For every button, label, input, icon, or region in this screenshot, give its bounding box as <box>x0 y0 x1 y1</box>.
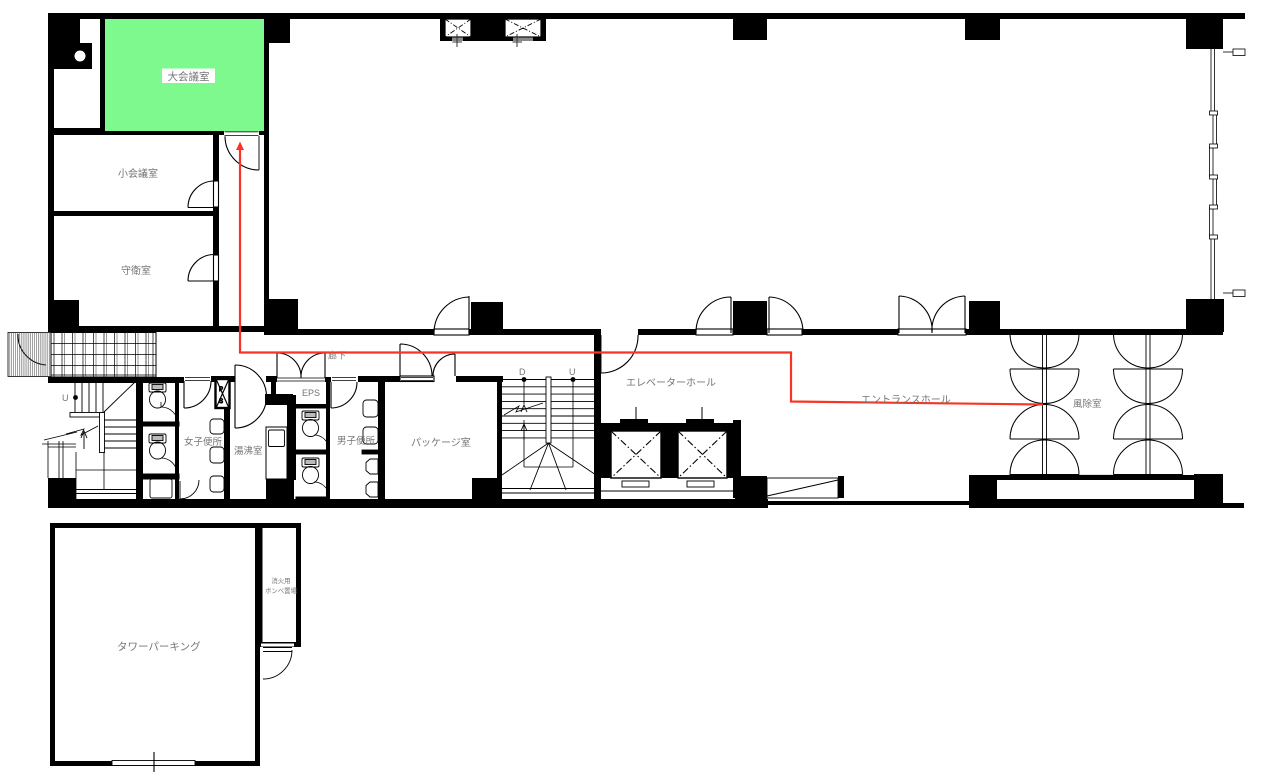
svg-text:EPS: EPS <box>302 388 320 398</box>
svg-text:風除室: 風除室 <box>1073 398 1102 410</box>
svg-text:小会議室: 小会議室 <box>118 167 158 180</box>
svg-text:エントランスホール: エントランスホール <box>861 394 951 406</box>
svg-text:U: U <box>569 367 576 377</box>
svg-text:廊下: 廊下 <box>328 350 346 361</box>
svg-text:男子便所: 男子便所 <box>337 435 376 447</box>
svg-text:消火用: 消火用 <box>271 576 290 585</box>
svg-text:S: S <box>219 399 223 405</box>
svg-text:パッケージ室: パッケージ室 <box>411 436 471 449</box>
svg-text:D: D <box>519 367 526 377</box>
svg-text:U: U <box>62 393 69 403</box>
svg-text:エレベーターホール: エレベーターホール <box>626 377 716 389</box>
svg-text:女子便所: 女子便所 <box>184 436 223 448</box>
svg-text:タワーパーキング: タワーパーキング <box>117 640 201 653</box>
svg-text:P: P <box>219 387 223 393</box>
svg-text:大会議室: 大会議室 <box>168 70 210 83</box>
svg-text:湯沸室: 湯沸室 <box>234 445 263 457</box>
svg-text:守衛室: 守衛室 <box>121 264 151 277</box>
svg-text:ボンベ置場: ボンベ置場 <box>265 586 298 595</box>
